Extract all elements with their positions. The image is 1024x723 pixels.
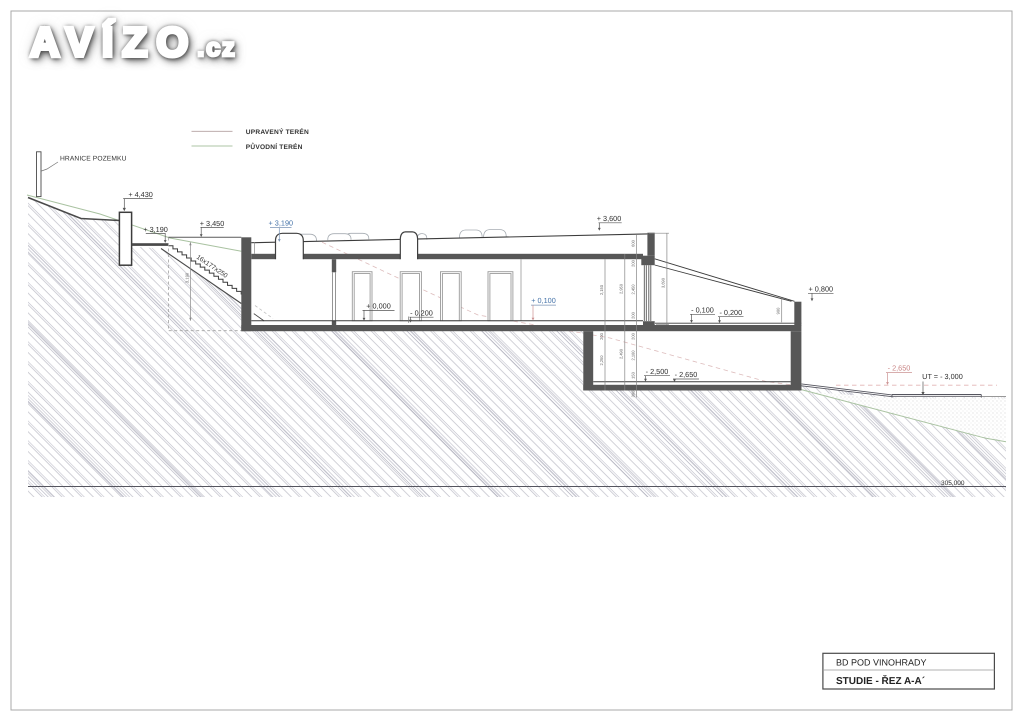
svg-text:200: 200 — [630, 259, 635, 266]
svg-text:150: 150 — [630, 371, 635, 378]
svg-text:2,100: 2,100 — [630, 350, 635, 361]
svg-text:305,000: 305,000 — [941, 480, 965, 487]
svg-text:+ 4,430: + 4,430 — [128, 190, 153, 199]
svg-text:- 0,200: - 0,200 — [719, 308, 742, 317]
svg-text:STUDIE - ŘEZ A-A´: STUDIE - ŘEZ A-A´ — [836, 675, 925, 687]
svg-text:+ 0,100: + 0,100 — [531, 296, 556, 305]
svg-text:UT = - 3,000: UT = - 3,000 — [922, 372, 963, 381]
svg-text:200: 200 — [630, 332, 635, 339]
svg-text:2,950: 2,950 — [619, 283, 624, 294]
svg-text:- 0,200: - 0,200 — [410, 308, 433, 317]
svg-text:2,490: 2,490 — [619, 348, 624, 359]
svg-text:- 2,650: - 2,650 — [888, 364, 911, 373]
svg-text:UPRAVENÝ TERÉN: UPRAVENÝ TERÉN — [246, 128, 309, 136]
svg-text:3,190: 3,190 — [185, 272, 190, 283]
svg-text:900: 900 — [776, 307, 781, 314]
svg-text:+ 3,450: + 3,450 — [200, 219, 225, 228]
svg-text:2,150: 2,150 — [599, 284, 604, 295]
svg-text:200: 200 — [599, 332, 604, 339]
svg-text:HRANICE POZEMKU: HRANICE POZEMKU — [60, 156, 127, 163]
svg-text:BD POD VINOHRADY: BD POD VINOHRADY — [836, 658, 927, 668]
svg-text:3,690: 3,690 — [661, 277, 666, 288]
svg-text:PŮVODNÍ TERÉN: PŮVODNÍ TERÉN — [246, 142, 303, 151]
svg-text:- 2,650: - 2,650 — [675, 370, 698, 379]
svg-text:600: 600 — [630, 239, 635, 246]
svg-text:+ 3,190: + 3,190 — [269, 219, 294, 228]
svg-text:- 0,100: - 0,100 — [691, 305, 714, 314]
svg-text:2,450: 2,450 — [630, 284, 635, 295]
svg-text:2,250: 2,250 — [599, 355, 604, 366]
svg-text:+ 0,800: + 0,800 — [809, 284, 834, 293]
svg-text:- 2,500: - 2,500 — [646, 367, 669, 376]
svg-text:+ 3,600: + 3,600 — [597, 214, 622, 223]
svg-text:200: 200 — [630, 311, 635, 318]
svg-text:+ 3,190: + 3,190 — [143, 225, 168, 234]
svg-text:390: 390 — [630, 390, 635, 397]
svg-text:+ 0,000: + 0,000 — [366, 301, 391, 310]
